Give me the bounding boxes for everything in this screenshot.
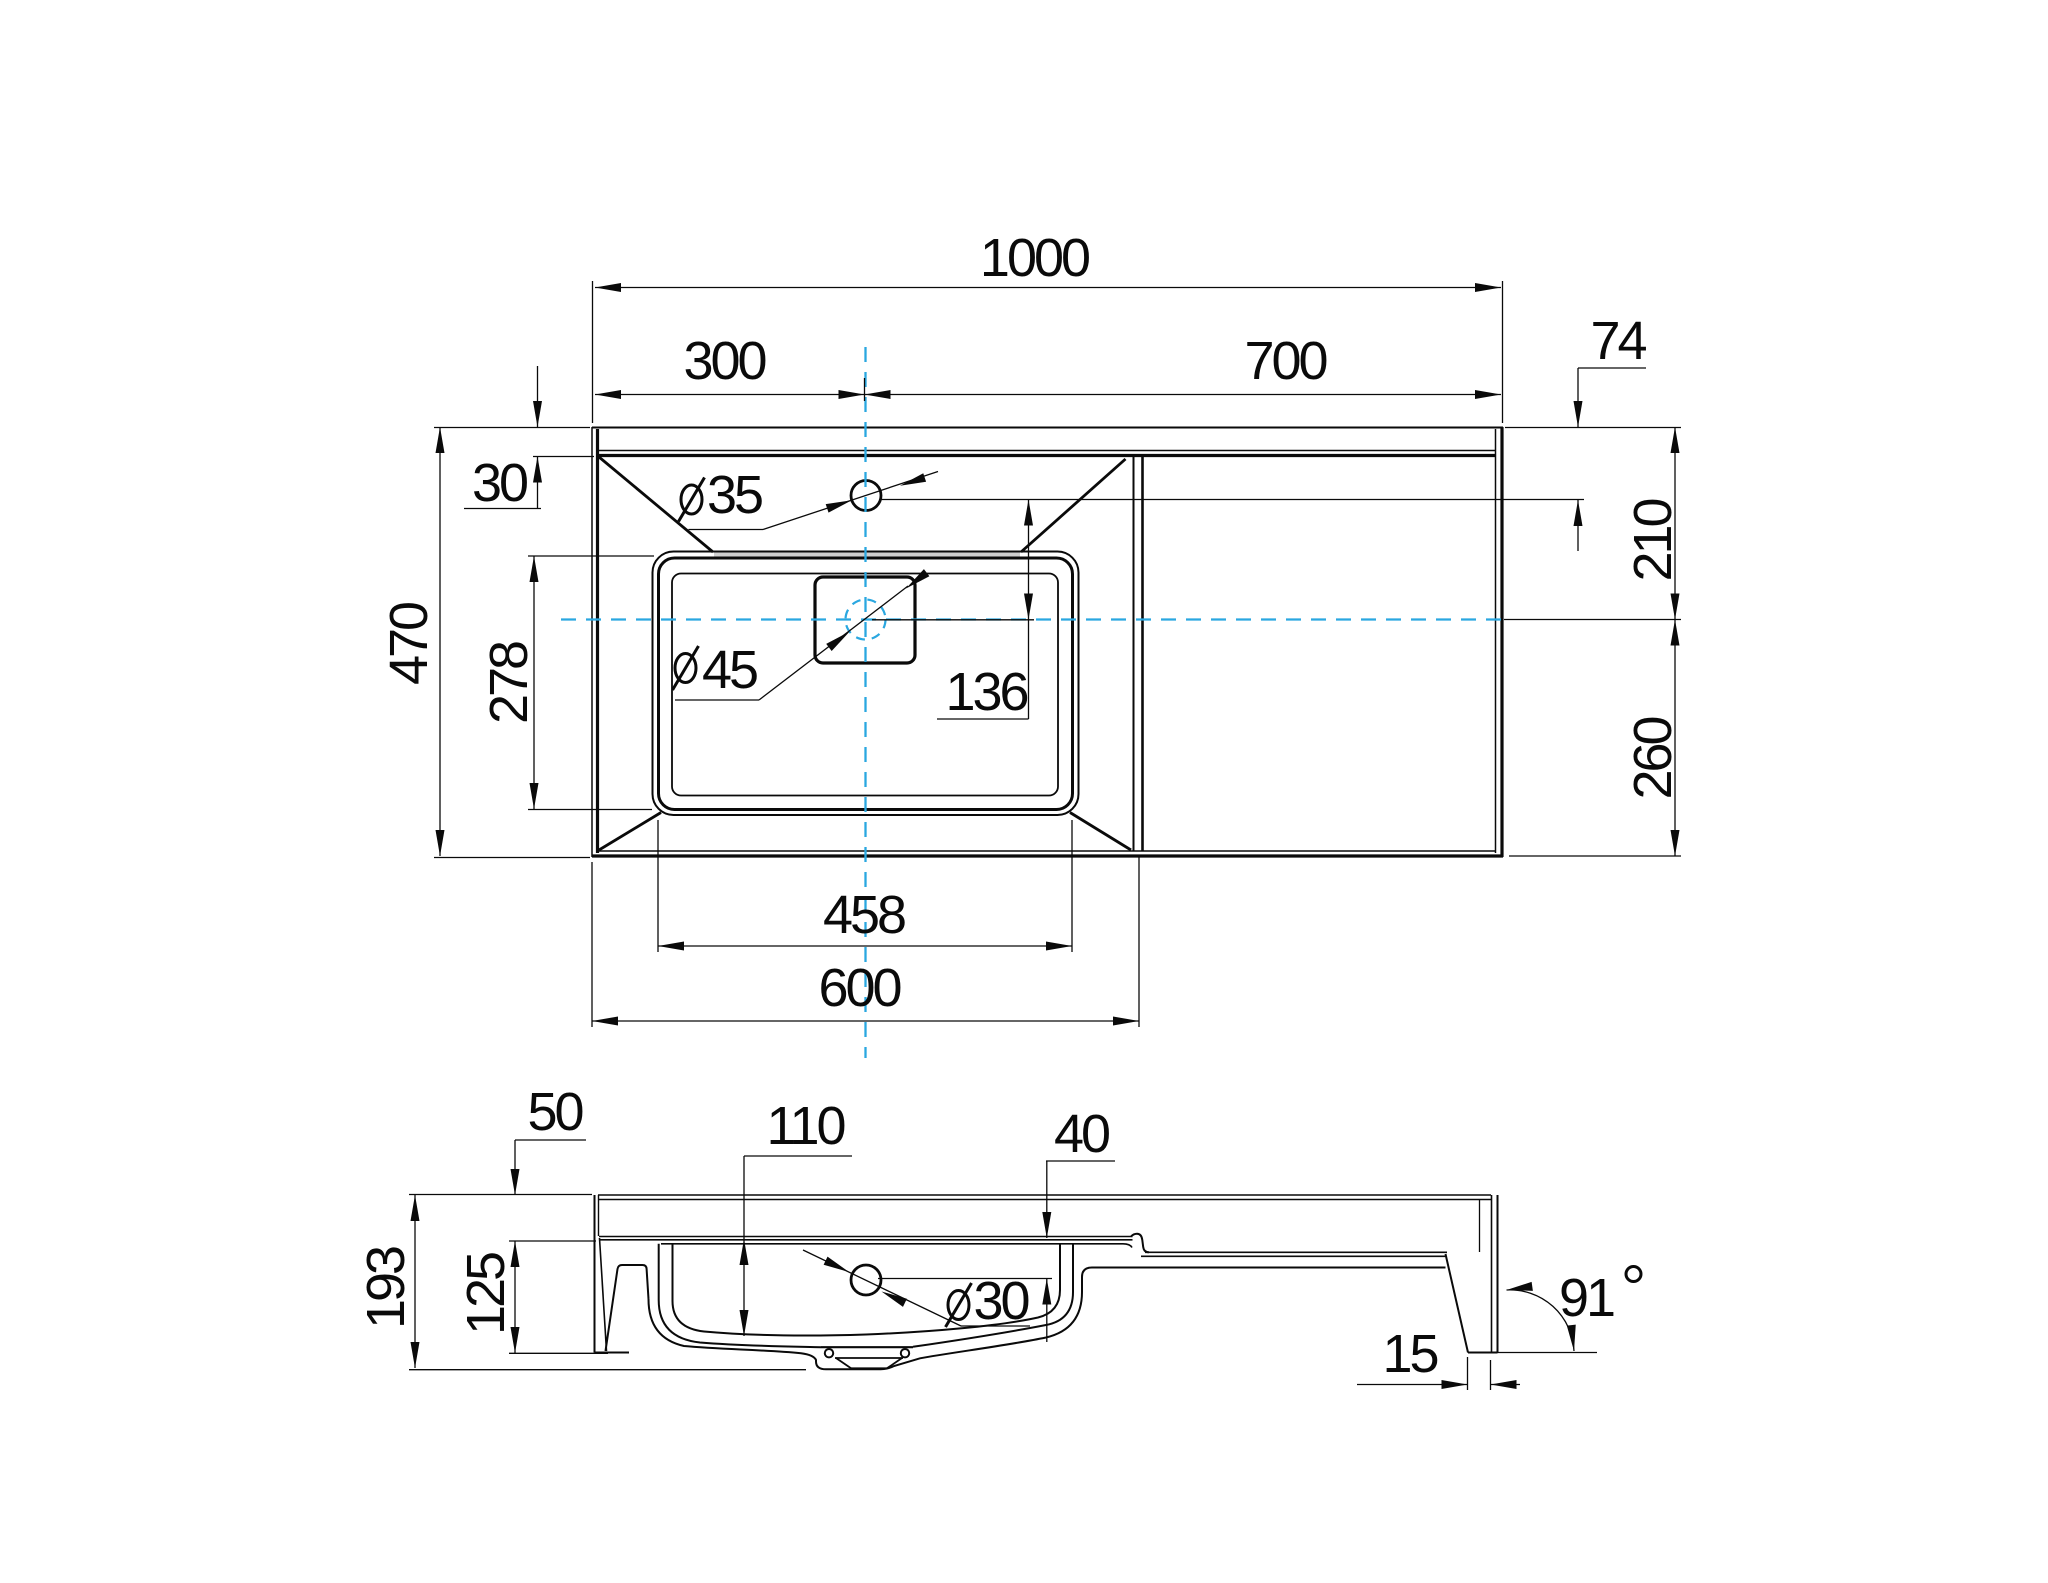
svg-text:45: 45 <box>702 640 757 700</box>
svg-text:74: 74 <box>1590 311 1646 371</box>
svg-text:35: 35 <box>707 465 762 525</box>
svg-text:700: 700 <box>1244 331 1326 391</box>
svg-text:1000: 1000 <box>980 228 1089 288</box>
svg-text:91: 91 <box>1559 1268 1614 1328</box>
svg-text:300: 300 <box>683 331 765 391</box>
svg-text:600: 600 <box>818 958 900 1018</box>
svg-text:278: 278 <box>479 642 539 724</box>
svg-text:210: 210 <box>1623 499 1683 581</box>
svg-text:50: 50 <box>527 1082 582 1142</box>
svg-text:15: 15 <box>1382 1324 1437 1384</box>
svg-text:260: 260 <box>1623 717 1683 799</box>
svg-text:470: 470 <box>379 603 439 685</box>
svg-text:125: 125 <box>456 1253 516 1335</box>
svg-text:30: 30 <box>472 453 527 513</box>
svg-text:40: 40 <box>1054 1104 1109 1164</box>
svg-text:136: 136 <box>945 662 1027 722</box>
svg-text:458: 458 <box>823 885 905 945</box>
svg-text:110: 110 <box>766 1096 844 1156</box>
svg-text:193: 193 <box>356 1247 416 1329</box>
svg-text:30: 30 <box>973 1271 1028 1331</box>
